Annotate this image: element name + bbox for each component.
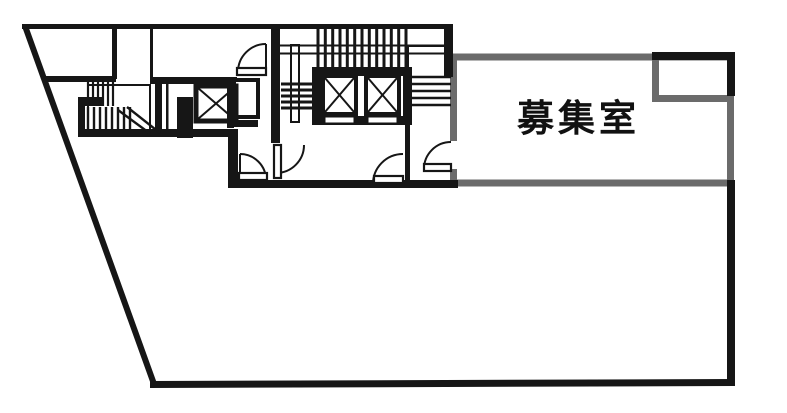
duct-partition [166, 84, 169, 129]
door-vestibule-top [237, 44, 266, 75]
vestibule-right-wall [271, 26, 280, 143]
elevator-lobby-top-wall [150, 77, 237, 84]
notch-right-wall [727, 52, 735, 96]
upper-left-cross-wall [46, 76, 116, 82]
double-elevator-core [317, 72, 408, 124]
core-right-exterior-pier [444, 24, 453, 77]
room-label: 募集室 [516, 97, 640, 140]
top-right-wall [652, 52, 735, 60]
corridor-left-wall [228, 135, 238, 183]
door-leased-room [424, 141, 459, 171]
pipe-shaft [177, 97, 193, 138]
stair-treads-right-of-core [411, 77, 451, 105]
floor-plan-canvas: 募集室 [0, 0, 787, 413]
upper-left-partition [112, 26, 117, 79]
stair-treads-left-of-core [281, 84, 313, 108]
thin-partition [150, 28, 153, 78]
corridor-bottom-wall [228, 180, 458, 188]
door-hall-right [373, 154, 403, 184]
stair-treads-lower [88, 107, 130, 132]
right-wall-lower [727, 180, 735, 386]
elevator-door-sill [368, 117, 397, 123]
top-stair-treads [318, 29, 406, 67]
elevator-door-sill [325, 117, 354, 123]
floor-plan-drawing: 募集室 [0, 0, 787, 413]
landing-wall [408, 46, 446, 72]
elevator-lobby-left-wall [155, 77, 162, 134]
hall-right-partition [405, 122, 410, 184]
door-hall-left [274, 145, 304, 178]
door-vestibule-bottom [239, 154, 267, 180]
bottom-wall [150, 383, 734, 385]
top-wall [22, 24, 452, 29]
stair-left-wall [78, 97, 85, 137]
